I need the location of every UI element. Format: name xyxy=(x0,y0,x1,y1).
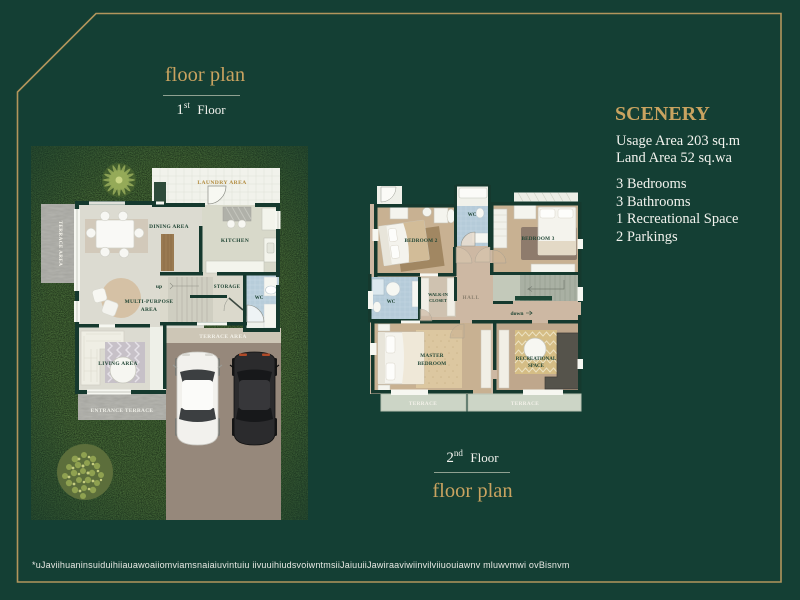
svg-text:WALK-IN: WALK-IN xyxy=(428,292,449,297)
svg-text:STORAGE: STORAGE xyxy=(214,285,241,290)
svg-text:BEDROOM 2: BEDROOM 2 xyxy=(404,238,437,244)
svg-text:BEDROOM 3: BEDROOM 3 xyxy=(521,236,554,242)
svg-text:TERRACE: TERRACE xyxy=(511,401,539,407)
svg-text:HALL: HALL xyxy=(462,295,479,301)
svg-text:TERRACE: TERRACE xyxy=(409,401,437,407)
svg-text:MASTER: MASTER xyxy=(420,353,443,359)
svg-text:LAUNDRY AREA: LAUNDRY AREA xyxy=(197,180,246,186)
svg-text:down: down xyxy=(510,311,524,317)
svg-text:WC: WC xyxy=(468,213,477,218)
svg-text:WC: WC xyxy=(255,296,264,301)
svg-text:WC: WC xyxy=(387,300,396,305)
svg-text:TERRACE AREA: TERRACE AREA xyxy=(57,221,63,267)
svg-text:RECREATIONAL: RECREATIONAL xyxy=(516,357,557,362)
svg-text:LIVING AREA: LIVING AREA xyxy=(98,361,137,367)
svg-text:TERRACE AREA: TERRACE AREA xyxy=(199,334,246,340)
svg-text:up: up xyxy=(156,284,162,290)
svg-text:DINING AREA: DINING AREA xyxy=(149,224,189,230)
svg-text:MULTI-PURPOSE: MULTI-PURPOSE xyxy=(125,299,174,305)
svg-text:KITCHEN: KITCHEN xyxy=(221,238,249,244)
svg-text:CLOSET: CLOSET xyxy=(429,298,447,303)
svg-text:SPACE: SPACE xyxy=(528,364,545,369)
svg-text:AREA: AREA xyxy=(141,307,157,313)
svg-text:ENTRANCE TERRACE: ENTRANCE TERRACE xyxy=(91,408,154,414)
svg-text:BEDROOM: BEDROOM xyxy=(418,361,447,367)
